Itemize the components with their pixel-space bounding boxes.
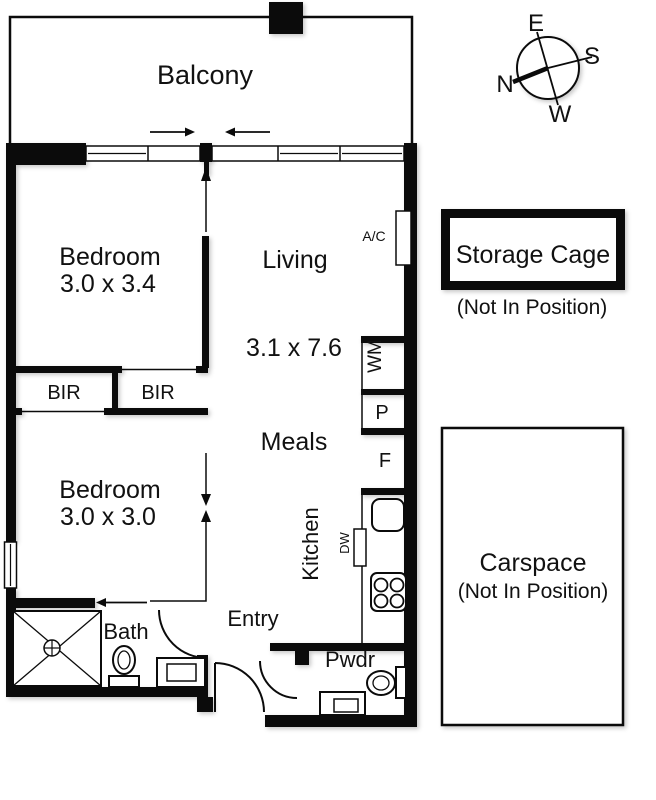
fridge-label: F [379,450,391,472]
bir-left-label: BIR [47,382,80,404]
bath-label: Bath [103,619,148,644]
balcony-window-band [86,146,404,161]
pwdr-vanity [320,692,365,715]
wm-label: WM [365,339,386,373]
living-dims: 3.1 x 7.6 [246,334,342,362]
compass-west-label: W [549,101,572,128]
dishwasher [354,529,366,566]
bedroom2-label: Bedroom [59,476,160,504]
bath-toilet [109,646,139,687]
living-label: Living [262,246,327,274]
dw-label: DW [337,531,352,553]
compass-east-label: E [528,10,544,37]
pwdr-door-arc [260,661,297,698]
storage-cage-note: (Not In Position) [457,296,608,319]
balcony-column [269,2,303,34]
carspace-label: Carspace [480,549,587,577]
storage-cage: Storage Cage (Not In Position) [446,214,621,320]
entry-door [215,663,264,712]
bath-slider-arrow-icon [96,598,147,607]
balcony-label: Balcony [157,60,254,90]
compass-south-label: S [584,43,600,70]
compass: E S N W [496,10,600,128]
bath-vanity [157,658,205,687]
ac-label: A/C [362,228,385,244]
cooktop [371,573,406,611]
kitchen-label: Kitchen [298,507,323,580]
bir-right-label: BIR [141,382,174,404]
left-window [5,542,17,588]
bedroom2-dims: 3.0 x 3.0 [60,503,156,531]
shower [13,611,101,686]
bed1-partition-arrow [201,167,211,232]
ac-unit [396,211,411,265]
bedroom1-dims: 3.0 x 3.4 [60,270,156,298]
bedroom1-label: Bedroom [59,243,160,271]
meals-label: Meals [261,428,328,456]
pwdr-label: Pwdr [325,647,375,672]
bath-door-arc [159,610,207,658]
carspace: Carspace (Not In Position) [442,428,623,725]
storage-cage-label: Storage Cage [456,241,610,269]
floorplan-page: Balcony [0,0,656,800]
carspace-note: (Not In Position) [458,580,609,603]
balcony: Balcony [10,2,412,147]
pantry-label: P [375,402,388,424]
floorplan-drawing: Balcony [0,0,656,800]
entry-label: Entry [227,606,278,631]
kitchen-sink [372,499,404,531]
compass-north-label: N [496,71,513,98]
